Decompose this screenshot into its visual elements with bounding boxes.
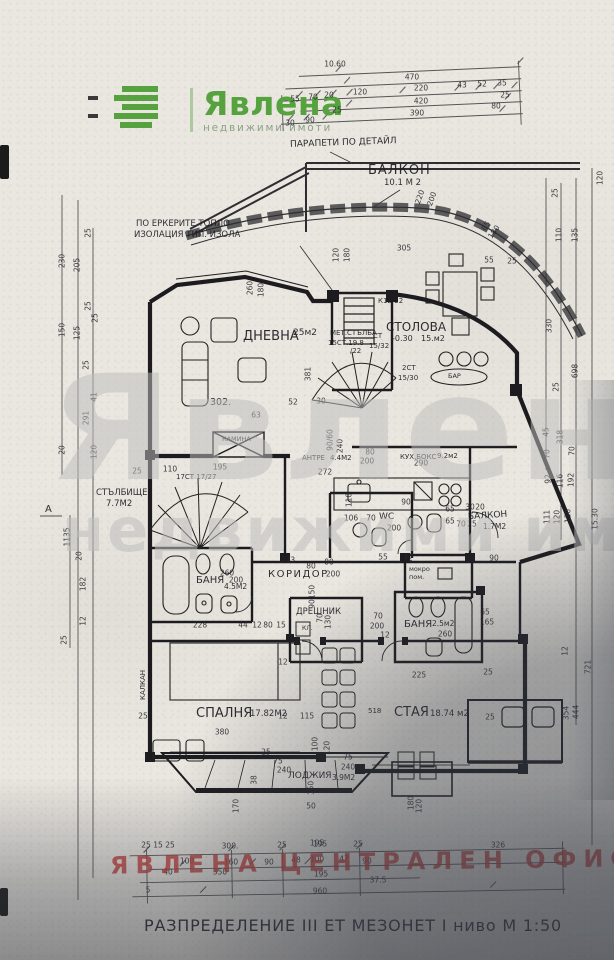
scan-artifact — [0, 145, 9, 179]
dimension-label: 225 — [412, 671, 426, 679]
dimension-label: 25 — [84, 228, 92, 238]
dimension-label: 100 — [311, 737, 319, 751]
dimension-label: 220 — [414, 84, 428, 92]
dimension-label: 25 — [261, 748, 271, 756]
dimension-label: 150 — [308, 585, 316, 599]
dimension-label: 12 — [252, 621, 262, 629]
dimension-label: 125 — [73, 326, 81, 340]
dimension-label: 25 — [277, 841, 287, 849]
dimension-label: 65 — [480, 608, 490, 616]
dimension-label: 12 — [380, 631, 390, 639]
dimension-label: 70 — [308, 93, 318, 101]
dimension-label: 5 — [146, 886, 151, 894]
dimension-label: 25 — [500, 91, 510, 99]
watermark-brand: Явлена — [48, 356, 614, 502]
dimension-label: 354 — [562, 706, 570, 720]
dimension-label: 165 — [480, 618, 494, 626]
dimension-label: 75 — [273, 757, 283, 765]
dimension-label: 228 — [193, 621, 207, 629]
scan-artifact — [0, 888, 8, 916]
dimension-label: 444 — [572, 705, 580, 719]
dimension-label: 37.5 — [370, 876, 387, 884]
dimension-label: 330 — [545, 319, 553, 333]
dimension-label: 300. — [222, 842, 239, 850]
dimension-label: 25 — [485, 713, 495, 721]
dimension-label: 20 — [324, 91, 334, 99]
dimension-label: 25 — [551, 188, 559, 198]
dimension-label: 25 — [483, 668, 493, 676]
dimension-label: 960 — [313, 887, 327, 895]
dimension-label: 420 — [414, 97, 428, 105]
dimension-label: 80 — [263, 621, 273, 629]
dimension-label: 35 — [497, 79, 507, 87]
dimension-label: 10.60 — [324, 60, 345, 68]
dimension-label: 115 — [300, 712, 314, 720]
dimension-label: 135 — [571, 228, 579, 242]
dimension-label: 120 — [332, 248, 340, 262]
dimension-label: 200 — [426, 191, 438, 207]
dimension-label: 120 — [415, 799, 423, 813]
dimension-label: 260 — [246, 281, 254, 295]
dimension-label: 75 — [343, 753, 353, 761]
dimension-label: 220 — [414, 189, 426, 205]
dimension-label: 55 — [290, 95, 300, 103]
dimension-label: 200 — [229, 576, 243, 584]
dimension-label: 70 — [373, 612, 383, 620]
dimension-label: 12 — [278, 712, 288, 720]
watermark-tagline: недвижими имоти — [62, 500, 614, 561]
dimension-label: 182 — [79, 577, 87, 591]
dimension-label: 12 — [79, 616, 87, 626]
dimension-label: 305 — [397, 244, 411, 252]
dimension-label: 25 — [138, 712, 148, 720]
dimension-label: 260 — [438, 630, 452, 638]
dimension-label: 52 — [477, 80, 487, 88]
scanned-floorplan-page: Явлена недвижими имоти ПАРАПЕТИ ПО ДЕТАЙ… — [0, 0, 614, 960]
dimension-label: 180 — [257, 283, 265, 297]
dimension-label: 90 — [308, 599, 316, 609]
dimension-label: 44 — [238, 621, 248, 629]
dimension-label: 50 — [306, 802, 316, 810]
dimension-label: 150 — [58, 323, 66, 337]
dimension-label: 200 — [370, 622, 384, 630]
dimension-label: 721 — [584, 660, 592, 674]
drawing-title: РАЗПРЕДЕЛЕНИЕ III ЕТ МЕЗОНЕТ I ниво М 1:… — [144, 916, 562, 935]
dimension-label: 25 — [91, 313, 99, 323]
dimension-label: 25 — [60, 635, 68, 645]
dimension-label: 38 — [250, 775, 258, 785]
dimension-label: 80 — [491, 102, 501, 110]
dimension-label: 15 — [153, 841, 163, 849]
dimension-label: 25 — [165, 841, 175, 849]
dimension-label: 150 — [307, 781, 315, 795]
dimension-label: 240 — [277, 766, 291, 774]
dimension-label: 55 — [484, 256, 494, 264]
dimension-label: 120 — [596, 171, 604, 185]
dimension-label: 12 — [561, 646, 569, 656]
dimension-label: 120 — [323, 741, 331, 755]
dimension-label: 90 — [305, 116, 315, 124]
dimension-label: 120 — [353, 88, 367, 96]
dimension-label: 25 — [332, 106, 342, 114]
dimension-label: 200 — [326, 570, 340, 578]
dimension-label: 15 — [276, 621, 286, 629]
dimension-label: 230 — [58, 254, 66, 268]
dimension-label: 240 — [341, 763, 355, 771]
dimension-label: 170 — [232, 799, 240, 813]
dimension-label: 130 — [324, 615, 332, 629]
dimension-label: 25 — [84, 301, 92, 311]
dimension-label: 380 — [215, 728, 229, 736]
dimension-label: 180 — [343, 248, 351, 262]
dimension-label: 30 — [285, 119, 295, 127]
dimension-label: 25 — [507, 257, 517, 265]
dimension-label: 110 — [555, 228, 563, 242]
dimension-label: 43 — [457, 81, 467, 89]
dimension-label: 25 — [353, 840, 363, 848]
dimension-label: 25 — [141, 841, 151, 849]
dimension-label: 390 — [410, 109, 424, 117]
dimension-label: 195 — [313, 840, 327, 848]
dimension-label: 205 — [73, 258, 81, 272]
dimension-label: 12 — [278, 658, 288, 666]
dimension-label: 470 — [405, 73, 419, 81]
